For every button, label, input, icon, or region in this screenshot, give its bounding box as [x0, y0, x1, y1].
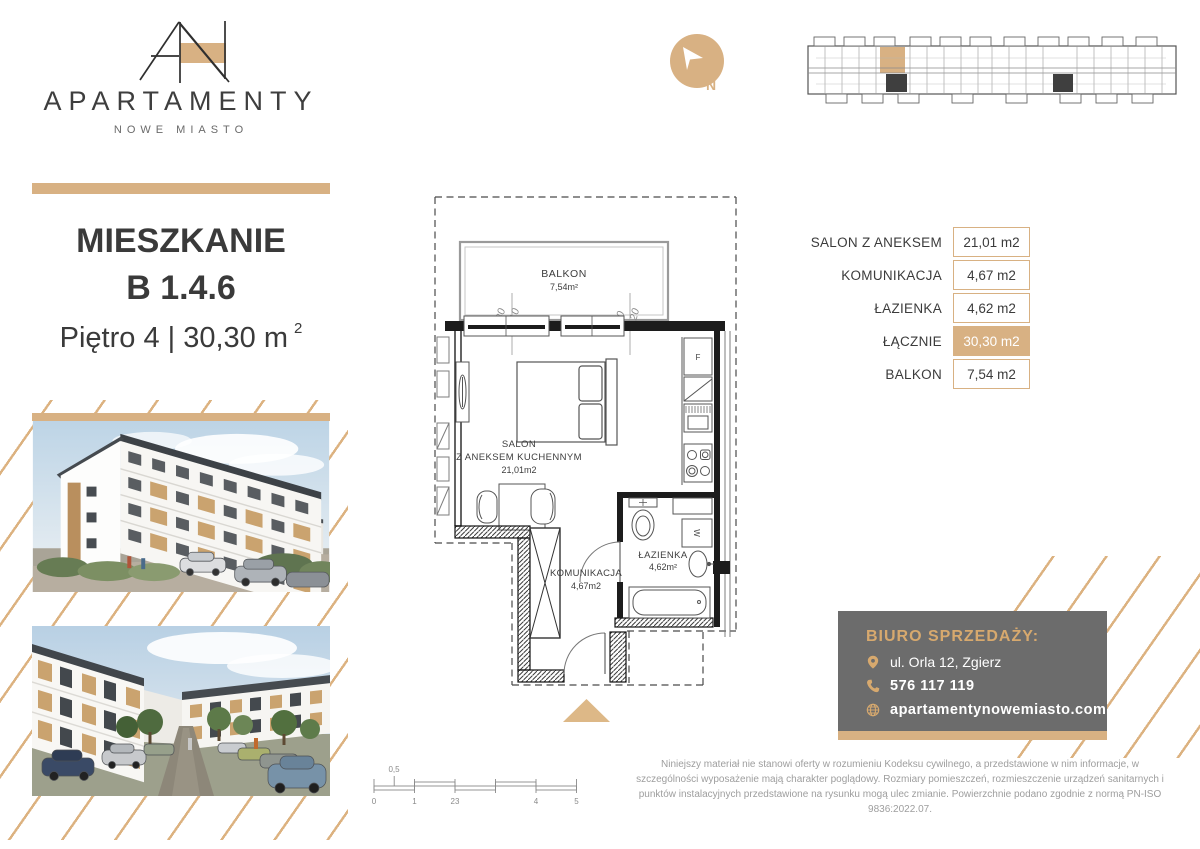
title-accent-bar [32, 183, 330, 194]
phone-icon [866, 679, 880, 693]
entrance-arrow [563, 699, 610, 722]
svg-text:23: 23 [451, 797, 460, 806]
salon-area: 21,01m2 [501, 465, 536, 475]
area-table: SALON Z ANEKSEM 21,01 m2 KOMUNIKACJA 4,6… [718, 227, 1030, 392]
bathroom-label: ŁAZIENKA [638, 550, 687, 561]
contact-phone: 576 117 119 [890, 678, 975, 694]
row-value: 7,54 m2 [953, 359, 1030, 389]
area-superscript: 2 [294, 320, 302, 337]
svg-text:4: 4 [534, 797, 539, 806]
balcony-outline [460, 242, 668, 320]
svg-text:0: 0 [372, 797, 377, 806]
compass-north-label: N [706, 77, 716, 93]
flyer-page: APARTAMENTY NOWE MIASTO N [0, 0, 1200, 849]
svg-text:1: 1 [412, 797, 417, 806]
table-row-total: ŁĄCZNIE 30,30 m2 [718, 326, 1030, 356]
washer-label: W [692, 529, 701, 537]
row-label: ŁAZIENKA [718, 301, 953, 316]
contact-website: apartamentynowemiasto.com [890, 702, 1106, 718]
balcony-area: 7,54m² [550, 282, 578, 292]
disclaimer-text: Niniejszy materiał nie stanowi oferty w … [630, 757, 1170, 817]
entrance-door [564, 633, 605, 674]
compass-icon: N [662, 32, 734, 94]
table-row: BALKON 7,54 m2 [718, 359, 1030, 389]
floor-plan: BALKON 7,54m² 180 210 90 120 [420, 185, 750, 750]
row-value: 4,67 m2 [953, 260, 1030, 290]
row-label: SALON Z ANEKSEM [718, 235, 953, 250]
balcony-label: BALKON [541, 268, 587, 280]
row-value: 21,01 m2 [953, 227, 1030, 257]
contact-address: ul. Orla 12, Zgierz [890, 654, 1001, 670]
render-photo-courtyard [32, 626, 330, 796]
row-value: 4,62 m2 [953, 293, 1030, 323]
globe-icon [866, 703, 880, 717]
dining-table [477, 484, 555, 530]
salon-label-2: Z ANEKSEM KUCHENNYM [456, 452, 582, 463]
table-row: ŁAZIENKA 4,62 m2 [718, 293, 1030, 323]
location-pin-icon [866, 655, 880, 669]
hall-label: KOMUNIKACJA [550, 568, 622, 579]
brand-name: APARTAMENTY [30, 86, 332, 117]
svg-text:5: 5 [574, 797, 579, 806]
table-row: KOMUNIKACJA 4,67 m2 [718, 260, 1030, 290]
page-title: MIESZKANIE [16, 222, 346, 261]
bed [517, 359, 617, 445]
salon-label: SALON [502, 439, 536, 450]
photo-accent-bar [32, 413, 330, 421]
row-label: BALKON [718, 367, 953, 382]
top-wall [445, 316, 725, 336]
contact-card: BIURO SPRZEDAŻY: ul. Orla 12, Zgierz 576… [838, 611, 1107, 732]
scale-bar: 0,5 0 1 23 4 5 [366, 758, 588, 812]
logo-monogram [133, 20, 231, 86]
render-photo-building-exterior [32, 421, 330, 592]
tv-cabinet [456, 362, 469, 422]
table-row: SALON Z ANEKSEM 21,01 m2 [718, 227, 1030, 257]
contact-heading: BIURO SPRZEDAŻY: [866, 628, 1107, 646]
fridge-label: F [696, 353, 701, 362]
scale-half-label: 0,5 [388, 765, 400, 774]
building-overview-plan [806, 14, 1178, 114]
apartment-title-block: MIESZKANIE B 1.4.6 Piętro 4 | 30,30 m2 [16, 222, 346, 355]
hall-area: 4,67m2 [571, 581, 601, 591]
brand-subtitle: NOWE MIASTO [30, 124, 332, 136]
row-label: KOMUNIKACJA [718, 268, 953, 283]
overview-highlighted-unit [880, 47, 905, 73]
row-value-total: 30,30 m2 [953, 326, 1030, 356]
apartment-number: B 1.4.6 [16, 269, 346, 308]
contact-accent-bar [838, 731, 1107, 740]
apartment-floor-area: Piętro 4 | 30,30 m2 [16, 320, 346, 355]
row-label: ŁĄCZNIE [718, 334, 953, 349]
bathroom-area: 4,62m² [649, 562, 677, 572]
wardrobe [530, 528, 560, 638]
